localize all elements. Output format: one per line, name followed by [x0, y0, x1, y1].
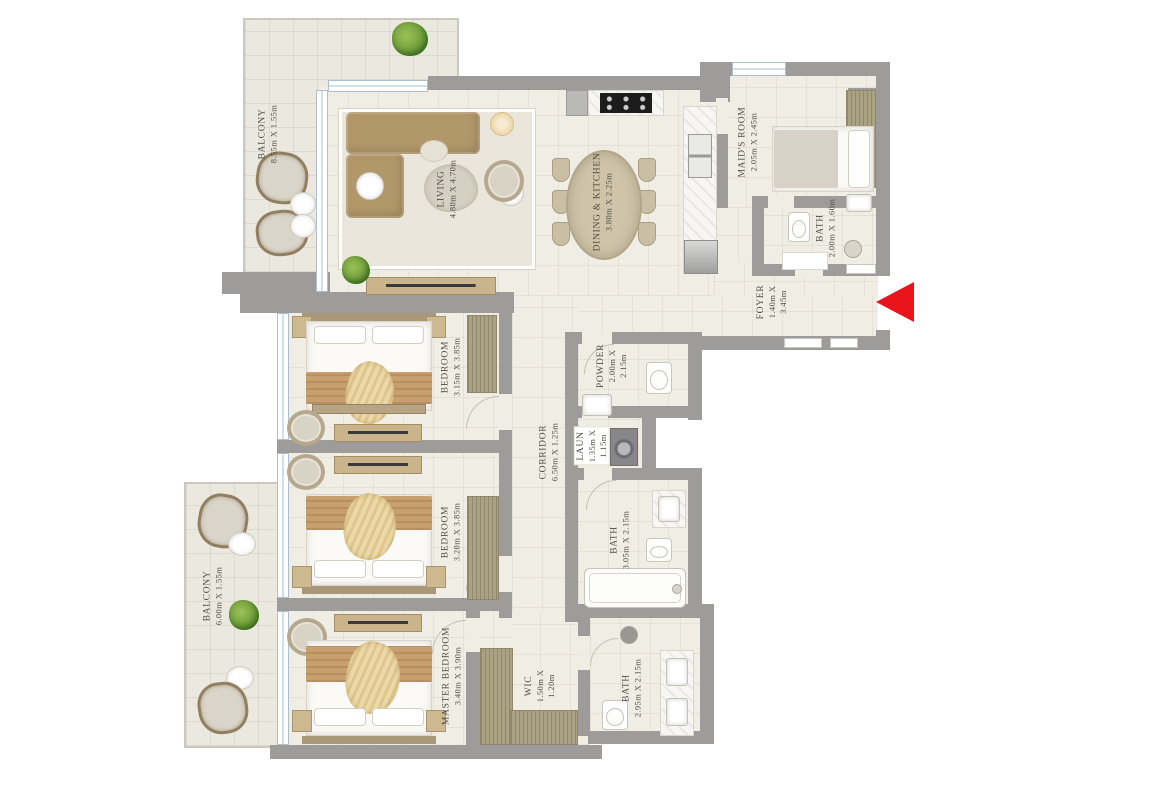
pouf — [420, 140, 448, 162]
room-label-bedroom-2: BEDROOM 3.20m X 3.85m — [439, 503, 462, 562]
master-bath-sink-2 — [666, 698, 688, 726]
balcony-bottom-table-1 — [228, 532, 256, 556]
wall-balcony-top-bottom — [222, 272, 330, 294]
bedroom1-pillow-right — [372, 326, 424, 344]
powder-sink — [582, 394, 612, 416]
entry-door-leaf — [846, 264, 876, 274]
shower-head — [620, 626, 638, 644]
bedroom2-nightstand-right — [426, 566, 446, 588]
maid-bath-sink — [846, 194, 872, 212]
wall-right-upper — [876, 76, 890, 276]
balcony-top-table-1 — [290, 192, 316, 216]
room-label-balcony-top: BALCONY 8.55m X 1.55m — [256, 105, 279, 164]
entry-arrow-icon — [876, 282, 914, 322]
sofa-main — [346, 112, 480, 154]
bedroom2-chair — [287, 454, 325, 490]
room-label-master-bath: BATH 2.95m X 2.15m — [620, 659, 643, 718]
tv-console — [366, 277, 496, 295]
room-label-master-bedroom: MASTER BEDROOM 3.40m X 3.90m — [440, 627, 463, 725]
bedroom2-nightstand-left — [292, 566, 312, 588]
door-master — [466, 618, 480, 652]
side-table-1 — [356, 172, 384, 200]
room-label-maids-room: MAID'S ROOM 2.05m X 2.45m — [736, 107, 759, 178]
bedroom1-bench — [312, 404, 426, 414]
dining-chair — [552, 158, 570, 182]
bedroom1-chair — [287, 410, 325, 446]
cooktop — [600, 93, 652, 113]
wall-kitchen-top — [428, 76, 728, 90]
floor-plan: BALCONY 8.55m X 1.55m LIVING 4.80m X 4.7… — [0, 0, 1170, 785]
wall-corridor-right — [565, 332, 578, 622]
door-powder — [582, 332, 612, 344]
door-maid — [716, 98, 728, 134]
room-label-corridor: CORRIDOR 6.50m X 1.25m — [537, 423, 560, 482]
master-dresser — [334, 614, 422, 632]
bedroom2-dresser — [334, 456, 422, 474]
room-label-wic: WIC 1.50m X 1.20m — [523, 670, 557, 703]
wic-wardrobe-bottom — [510, 710, 578, 745]
tub-faucet — [672, 584, 682, 594]
plant-balcony-top — [392, 22, 428, 56]
bedroom1-headboard — [302, 313, 436, 321]
closet-foyer-2 — [830, 338, 858, 348]
bedroom1-dresser — [334, 424, 422, 442]
master-bath-sink-1 — [666, 658, 688, 686]
kitchen-sink — [688, 134, 712, 178]
master-headboard — [302, 736, 436, 744]
wall-kitchen-maid — [716, 76, 728, 208]
living-armchair — [484, 160, 524, 202]
window-living-balcony — [316, 90, 328, 292]
door-bedroom2 — [499, 556, 512, 592]
master-pillow-right — [372, 708, 424, 726]
bathtub — [584, 568, 686, 608]
bedroom2-headboard — [302, 586, 436, 594]
door-maid-bath — [768, 196, 794, 208]
balcony-top-table-2 — [290, 214, 316, 238]
plant-balcony-bottom — [229, 600, 259, 630]
maid-bath-toilet — [788, 212, 810, 242]
bedroom1-wardrobe — [467, 315, 497, 393]
dining-chair — [552, 222, 570, 246]
window-maid — [732, 62, 786, 76]
wall-bath-shared-right — [688, 480, 702, 612]
washing-machine — [610, 428, 638, 466]
door-bedroom1 — [499, 394, 512, 430]
wall-bottom — [270, 745, 602, 759]
maid-bed-blanket — [774, 130, 838, 188]
room-label-balcony-bottom: BALCONY 6.00m X 1.55m — [201, 567, 224, 626]
bedroom2-wardrobe — [467, 496, 499, 600]
bath-shared-toilet — [646, 538, 672, 562]
closet-foyer-1 — [784, 338, 822, 348]
bath-shared-sink — [658, 496, 680, 522]
room-label-laundry: LAUN 1.35m X 1.15m — [575, 428, 609, 465]
door-bath-shared — [584, 468, 612, 480]
bedroom1-pillow-left — [314, 326, 366, 344]
wic-wardrobe-left — [480, 648, 513, 745]
dining-chair — [638, 222, 656, 246]
plant-living — [342, 256, 370, 284]
dishwasher — [684, 240, 718, 274]
master-nightstand-left — [292, 710, 312, 732]
wall-bedroom-block-top — [240, 292, 514, 313]
room-label-maid-bath: BATH 2.00m X 1.60m — [814, 199, 837, 258]
master-pillow-left — [314, 708, 366, 726]
room-label-living: LIVING 4.80m X 4.70m — [435, 160, 458, 219]
kitchen-cabinet — [566, 90, 588, 116]
door-master-bath — [578, 636, 590, 670]
maid-bed-pillow — [848, 130, 870, 188]
wall-bedroom2-master — [277, 598, 499, 611]
room-label-bath-shared: BATH 3.05m X 2.15m — [608, 511, 631, 570]
window-living-top — [328, 80, 428, 92]
room-label-dining-kitchen: DINING & KITCHEN 3.80m X 2.25m — [591, 153, 614, 252]
wall-master-bath-right — [700, 618, 714, 744]
room-label-powder: POWDER 2.00m X 2.15m — [595, 344, 629, 388]
dining-chair — [638, 158, 656, 182]
wall-master-bath-bottom — [588, 731, 714, 744]
bedroom2-pillow-right — [372, 560, 424, 578]
bedroom2-pillow-left — [314, 560, 366, 578]
room-label-bedroom-1: BEDROOM 3.15m X 3.85m — [439, 338, 462, 397]
maid-bath-shower-drain — [844, 240, 862, 258]
powder-toilet — [646, 362, 672, 394]
room-label-foyer: FOYER 1.40m X 3.45m — [755, 285, 789, 320]
floor-lamp — [490, 112, 514, 136]
